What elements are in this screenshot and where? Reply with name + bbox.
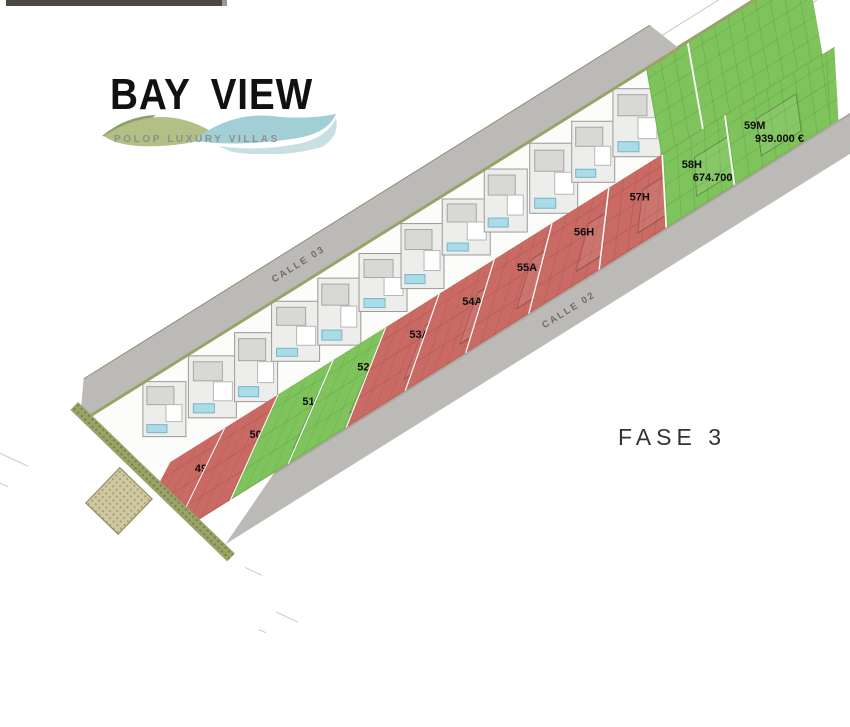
- villa-terrace: [340, 306, 358, 328]
- pool-icon: [276, 348, 299, 358]
- villa-footprint: [188, 355, 237, 418]
- lot-price: 939.000 €: [755, 133, 804, 145]
- villa-terrace: [423, 250, 441, 271]
- logo: BAY VIEW POLOP LUXURY VILLAS: [100, 66, 350, 156]
- pool-icon: [576, 168, 596, 178]
- villa-roof: [238, 339, 265, 361]
- villa-roof: [576, 127, 603, 147]
- pool-icon: [447, 242, 470, 251]
- lot-id: 57H: [630, 192, 650, 204]
- villa-roof: [322, 284, 349, 306]
- pool-icon: [534, 198, 557, 209]
- villa-terrace: [506, 195, 524, 216]
- lot-divider: [687, 43, 704, 130]
- villa-footprint: [142, 381, 186, 437]
- villa-footprint: [271, 301, 320, 362]
- villa-roof: [193, 361, 223, 381]
- lot-id: 56H: [574, 226, 594, 238]
- villa-roof: [405, 229, 432, 250]
- pool-icon: [488, 218, 508, 228]
- villa-terrace: [257, 361, 275, 383]
- villa-terrace: [165, 404, 183, 422]
- villa-footprint: [571, 121, 615, 183]
- lot-label: 59M939.000 €: [744, 120, 804, 145]
- pool-icon: [193, 404, 216, 414]
- villa-footprint: [484, 169, 528, 233]
- top-accent-bar: [6, 0, 227, 6]
- logo-subtitle: POLOP LUXURY VILLAS: [114, 134, 280, 145]
- phase-label: FASE 3: [618, 424, 726, 451]
- logo-title: BAY VIEW: [110, 70, 313, 120]
- lot-label: 57H: [630, 192, 650, 204]
- villa-footprint: [401, 223, 445, 289]
- pool-icon: [617, 141, 640, 152]
- lot-label: 55A: [517, 262, 537, 274]
- villa-terrace: [213, 381, 233, 401]
- villa-roof: [147, 386, 174, 404]
- villa-roof: [276, 306, 306, 326]
- pool-icon: [147, 424, 167, 433]
- villa-roof: [447, 204, 477, 223]
- pool-icon: [405, 274, 425, 284]
- villa-footprint: [317, 278, 361, 346]
- villa-roof: [363, 259, 393, 278]
- villa-roof: [488, 174, 515, 195]
- lot-id: 55A: [517, 262, 537, 274]
- lot-label: 56H: [574, 226, 594, 238]
- villa-terrace: [296, 326, 316, 346]
- villa-roof: [617, 95, 647, 117]
- pool-icon: [238, 386, 258, 397]
- villa-roof: [534, 149, 564, 172]
- lot-id: 59M: [744, 120, 804, 132]
- pool-icon: [322, 330, 342, 341]
- pool-icon: [363, 298, 386, 307]
- villa-terrace: [594, 146, 612, 166]
